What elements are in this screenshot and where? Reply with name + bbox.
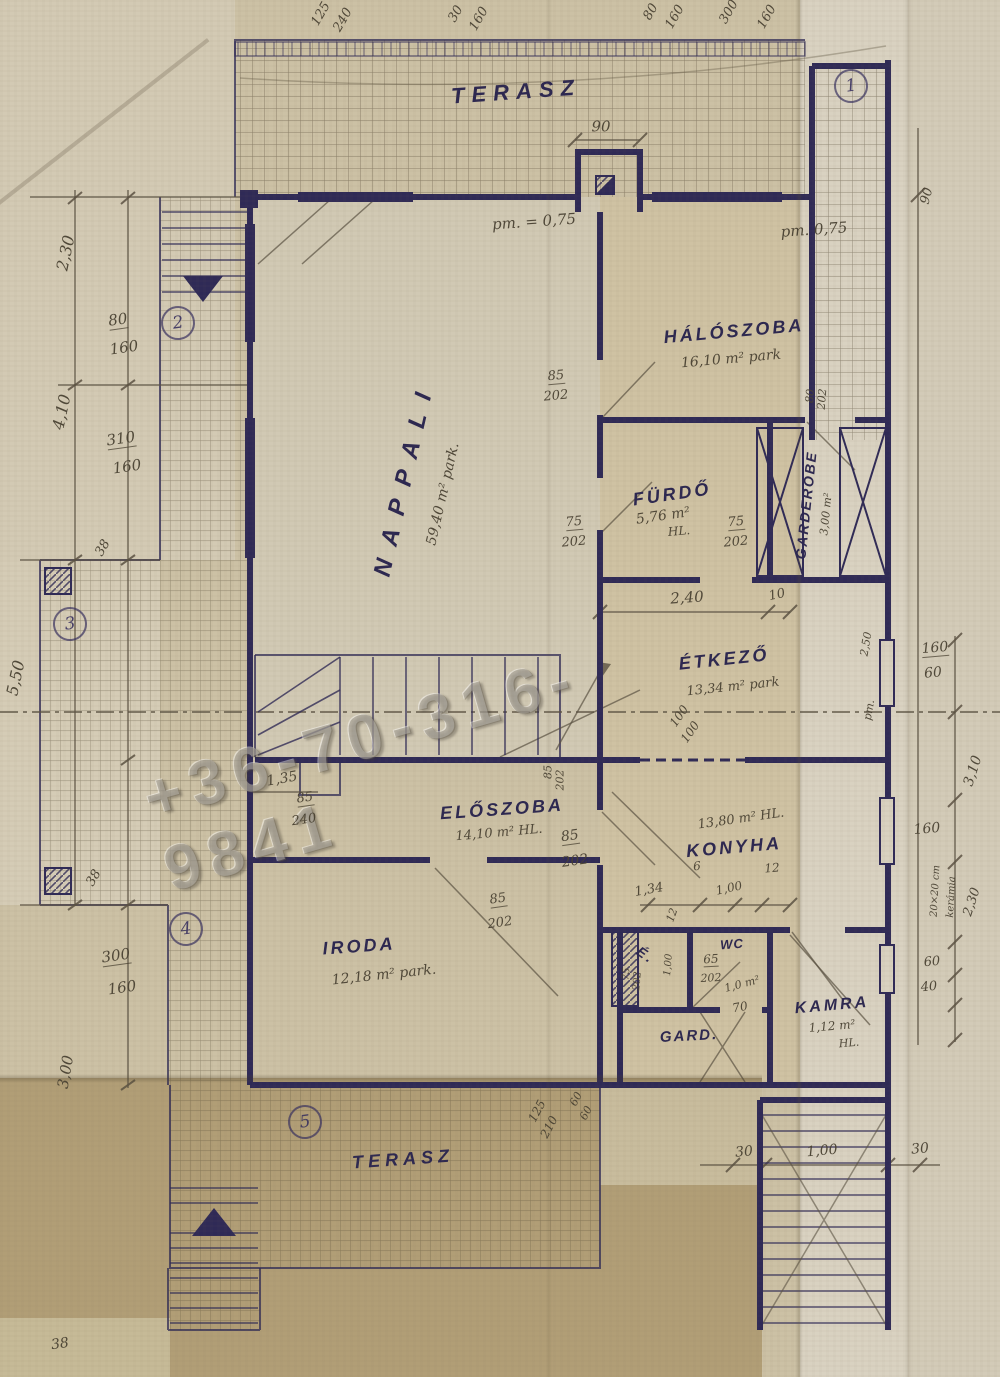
- dim-label: 85: [296, 790, 314, 807]
- dim-label: 5,50: [4, 659, 27, 697]
- dim-label: 38: [50, 1336, 70, 1352]
- dim-label: 202: [543, 388, 569, 403]
- dim-label: 3,00: [56, 1054, 77, 1090]
- dim-label: 202: [723, 534, 749, 549]
- dim-label: 240: [291, 812, 317, 828]
- dim-label: 30: [446, 4, 466, 25]
- dim-label: 160: [755, 3, 779, 31]
- dim-label: pm. = 0,75: [492, 212, 577, 233]
- dim-label: 75: [565, 515, 583, 531]
- room-label: KONYHA: [685, 834, 782, 860]
- dim-label: 202: [700, 972, 722, 984]
- dim-label: 202: [555, 770, 566, 791]
- dim-label: 38: [84, 868, 104, 889]
- dim-label: 90: [919, 186, 936, 205]
- dim-label: 1,34: [634, 881, 665, 899]
- plan-labels: TERASZHÁLÓSZOBA16,10 m² parkFÜRDŐ5,76 m²…: [0, 0, 1000, 1377]
- dim-label: HL.: [667, 524, 690, 538]
- room-area-label: 16,10 m² park: [680, 348, 781, 371]
- dim-label: 1,00: [663, 953, 675, 976]
- dim-label: kerámia: [946, 876, 958, 918]
- dim-label: 202: [816, 388, 829, 410]
- dim-label: 1,0 m²: [723, 974, 760, 994]
- room-area-label: 13,80 m² HL.: [697, 807, 785, 832]
- blueprint-scan: +36-70-316-9841 TERASZHÁLÓSZOBA16,10 m² …: [0, 0, 1000, 1377]
- dim-label: 1,00: [715, 879, 744, 896]
- dim-label: 125: [309, 0, 333, 28]
- dim-label: 300: [101, 947, 132, 968]
- dim-label: HL.: [838, 1037, 859, 1050]
- dim-label: 10: [768, 587, 787, 603]
- room-label: KAMRA: [794, 995, 870, 1017]
- room-label: IRODA: [322, 934, 396, 957]
- dim-label: 65: [703, 953, 719, 968]
- room-label: NAPPALI: [371, 377, 440, 579]
- dim-label: 38: [93, 538, 113, 559]
- dim-label: 160: [921, 640, 949, 658]
- dim-label: 160: [107, 979, 137, 998]
- room-area-label: 3,00 m²: [818, 492, 833, 536]
- dim-label: 85: [547, 369, 565, 385]
- dim-label: pm. 0,75: [780, 220, 848, 240]
- axis-marker-circle: 3: [51, 605, 89, 643]
- dim-label: 30: [735, 1144, 754, 1160]
- room-label: ÉTKEZŐ: [678, 645, 770, 672]
- room-label: WC: [720, 937, 745, 952]
- room-label: TERASZ: [351, 1146, 454, 1171]
- dim-label: 75: [727, 515, 745, 531]
- room-label: GARDEROBE: [793, 450, 818, 560]
- dim-label: 85: [560, 828, 580, 846]
- dim-label: 160: [663, 3, 687, 31]
- dim-label: É.: [634, 944, 658, 967]
- dim-label: 202: [632, 971, 644, 991]
- axis-marker-circle: 4: [167, 910, 205, 948]
- axis-marker-circle: 5: [286, 1103, 324, 1141]
- dim-label: 6: [693, 860, 702, 873]
- dim-label: 1,00: [806, 1143, 838, 1160]
- dim-label: 85: [543, 765, 554, 779]
- room-area-label: 14,10 m² HL.: [455, 823, 543, 844]
- room-area-label: 1,12 m²: [808, 1018, 856, 1034]
- dim-label: 160: [112, 458, 142, 477]
- dim-label: 75: [621, 967, 632, 981]
- dim-label: 202: [561, 852, 589, 870]
- dim-label: 210: [538, 1114, 559, 1140]
- dim-label: 1,35: [265, 769, 298, 788]
- room-label: ELŐSZOBA: [440, 796, 565, 823]
- axis-marker-circle: 2: [159, 304, 197, 342]
- room-area-label: 12,18 m² park.: [331, 963, 437, 988]
- dim-label: pm.: [862, 699, 876, 722]
- dim-label: 2,40: [670, 589, 704, 606]
- dim-label: 80: [641, 2, 661, 23]
- dim-label: 240: [331, 6, 355, 34]
- dim-label: 60: [578, 1104, 594, 1122]
- dim-label: 160: [913, 821, 941, 837]
- dim-label: 40: [920, 980, 938, 994]
- dim-label: 60: [924, 665, 943, 681]
- axis-marker-circle: 1: [832, 67, 870, 105]
- dim-label: 2,30: [961, 886, 982, 918]
- dim-label: 12: [764, 861, 780, 874]
- dim-label: 30: [911, 1141, 930, 1157]
- dim-label: 310: [106, 430, 137, 451]
- dim-label: 3,10: [962, 754, 985, 788]
- dim-label: 2,30: [54, 234, 77, 272]
- room-area-label: 59,40 m² park.: [424, 441, 461, 546]
- dim-label: 90: [591, 120, 610, 135]
- dim-label: 80: [107, 311, 128, 330]
- room-area-label: 13,34 m² park: [686, 676, 780, 699]
- dim-label: 60: [923, 955, 941, 969]
- dim-label: 202: [561, 534, 587, 549]
- dim-label: 4,10: [50, 393, 73, 431]
- dim-label: 300: [717, 0, 741, 26]
- dim-label: 160: [467, 5, 491, 33]
- room-label: HÁLÓSZOBA: [663, 316, 805, 346]
- room-label: FÜRDŐ: [632, 480, 713, 509]
- dim-label: 12: [664, 907, 679, 924]
- dim-label: 202: [487, 915, 513, 931]
- room-label: TERASZ: [450, 76, 581, 107]
- room-label: GARD.: [659, 1027, 718, 1045]
- dim-label: 70: [731, 1000, 748, 1014]
- dim-label: 2,50: [858, 631, 873, 657]
- dim-label: 160: [109, 339, 139, 358]
- dim-label: 85: [489, 891, 507, 908]
- dim-label: 20×20 cm: [930, 865, 943, 918]
